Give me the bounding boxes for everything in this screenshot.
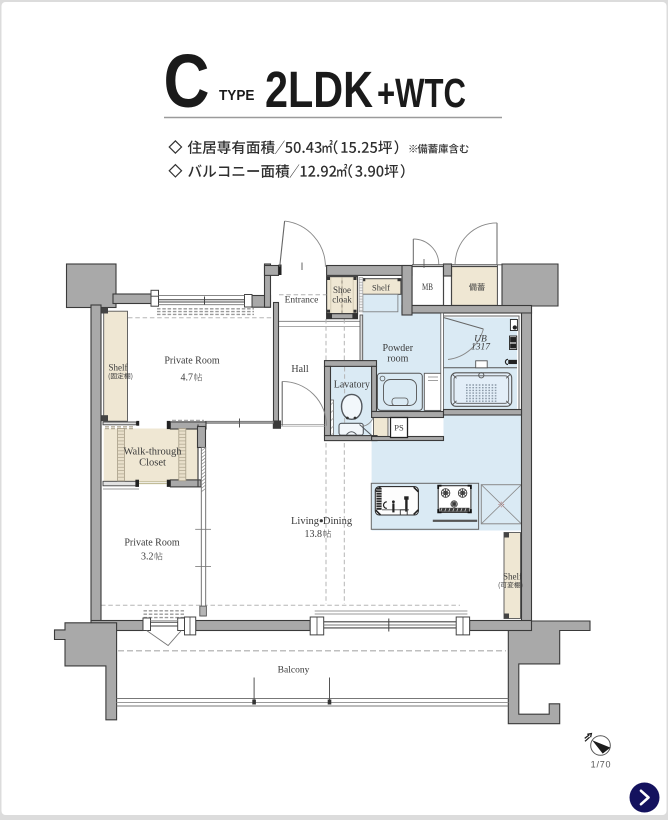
svg-text:Lavatory: Lavatory bbox=[334, 380, 370, 391]
svg-text:cloak: cloak bbox=[332, 295, 352, 305]
svg-text:MB: MB bbox=[422, 283, 433, 293]
svg-text:Private Room: Private Room bbox=[124, 538, 179, 549]
svg-text:Closet: Closet bbox=[139, 458, 166, 469]
svg-text:Shelf: Shelf bbox=[109, 363, 128, 373]
svg-text:Entrance: Entrance bbox=[285, 296, 319, 306]
svg-text:Walk-through: Walk-through bbox=[123, 447, 182, 458]
svg-text:+WTC: +WTC bbox=[377, 70, 466, 116]
svg-text:1/70: 1/70 bbox=[591, 759, 612, 769]
svg-text:Shelf: Shelf bbox=[503, 572, 522, 582]
svg-text:13.8: 13.8 bbox=[305, 529, 323, 540]
svg-text:Shelf: Shelf bbox=[372, 283, 390, 293]
svg-text:TYPE: TYPE bbox=[219, 88, 255, 104]
svg-text:1317: 1317 bbox=[471, 343, 491, 353]
svg-text:Balcony: Balcony bbox=[278, 666, 310, 676]
svg-text:C: C bbox=[164, 39, 210, 123]
svg-text:Hall: Hall bbox=[291, 364, 308, 375]
svg-text:Private Room: Private Room bbox=[164, 356, 219, 367]
svg-text:Living: Living bbox=[291, 516, 320, 527]
svg-text:room: room bbox=[387, 354, 408, 365]
svg-text:Dining: Dining bbox=[323, 516, 353, 527]
svg-text:4.7: 4.7 bbox=[181, 373, 194, 384]
svg-text:PS: PS bbox=[394, 423, 404, 433]
svg-text:3.2: 3.2 bbox=[141, 552, 154, 563]
svg-text:Shoe: Shoe bbox=[333, 285, 351, 295]
svg-text:Powder: Powder bbox=[383, 343, 414, 354]
svg-text:2LDK: 2LDK bbox=[265, 61, 373, 118]
